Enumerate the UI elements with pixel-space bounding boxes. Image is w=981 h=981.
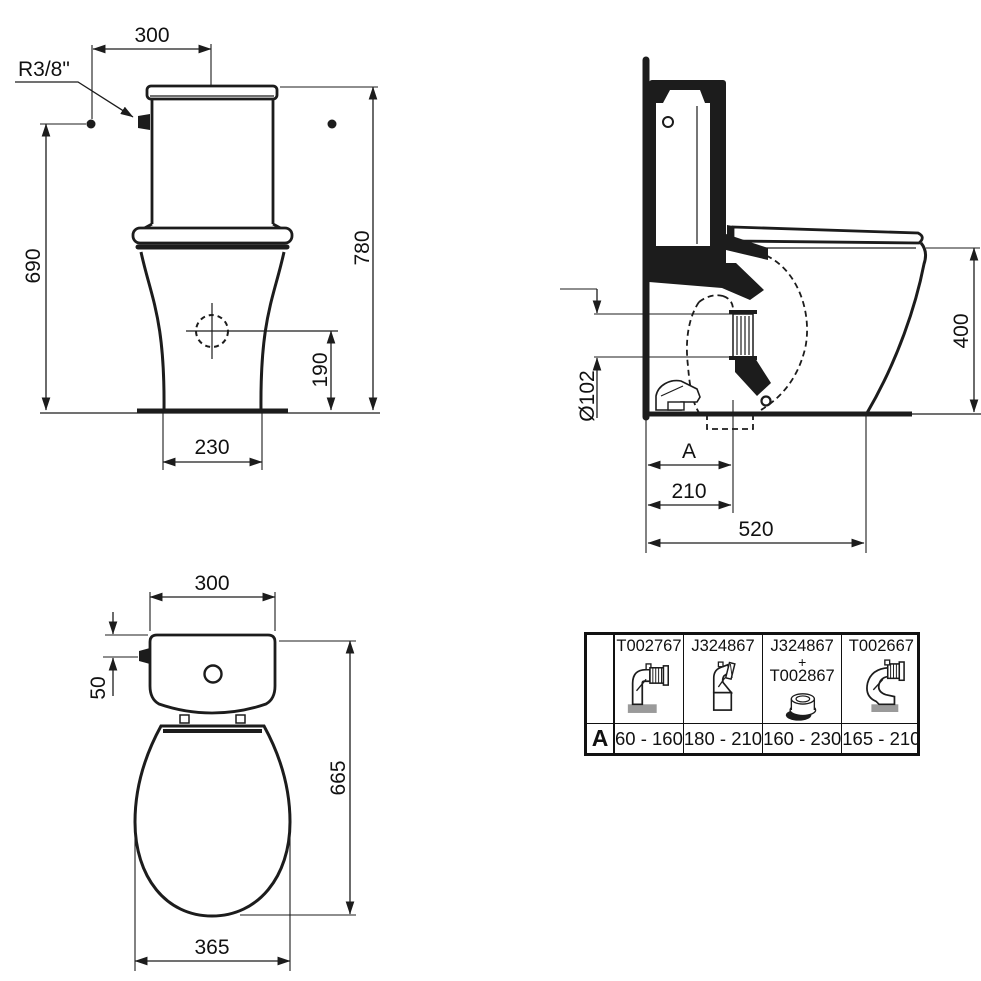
flush-button-side xyxy=(663,117,673,127)
bowl-front-profile xyxy=(867,243,926,413)
dim-total-height: 780 xyxy=(351,230,374,265)
outlet-spigot xyxy=(733,314,753,357)
part-number: T002667 xyxy=(849,638,914,656)
dim-tank-width: 300 xyxy=(194,572,229,595)
dim-adjustable: A xyxy=(682,440,696,463)
dim-outlet-center-height: 190 xyxy=(309,352,332,387)
seat-front xyxy=(133,228,292,243)
flush-button-top xyxy=(205,666,222,683)
eccentric-seal-icon xyxy=(776,687,828,723)
seat-bumper-dot xyxy=(762,397,771,406)
hinge-left xyxy=(180,715,189,723)
dim-seat-height: 400 xyxy=(950,313,973,348)
seat-lid-side xyxy=(733,227,922,243)
table-range-value: 60 - 160 xyxy=(613,723,683,753)
dim-inlet-thread: R3/8" xyxy=(18,58,70,81)
table-row-label: A xyxy=(587,723,613,753)
table-part-cell: J324867 xyxy=(683,635,762,723)
dim-outlet-wall-distance: 210 xyxy=(671,480,706,503)
table-part-cell: T002667 xyxy=(841,635,920,723)
table-part-cell: T002767 xyxy=(613,635,683,723)
part-number: J324867 xyxy=(691,638,754,656)
dim-base-width: 230 xyxy=(194,436,229,459)
table-range-value: 165 - 210 xyxy=(841,723,920,753)
table-range-value: 160 - 230 xyxy=(762,723,841,753)
offset-bend-pipe-icon xyxy=(699,657,747,717)
dim-inlet-height: 690 xyxy=(22,248,45,283)
toilet-dimension-drawing: 300 R3/8" 690 780 190 230 xyxy=(0,0,981,981)
hinge-right xyxy=(236,715,245,723)
dim-outlet-diameter: Ø102 xyxy=(576,370,599,421)
flush-mechanism xyxy=(649,263,764,300)
pedestal-left-edge xyxy=(141,252,164,411)
technical-drawing-page: 300 R3/8" 690 780 190 230 xyxy=(0,0,981,981)
bowl-top-outline xyxy=(135,726,290,916)
elbow-corrugated-pipe-icon xyxy=(624,657,674,717)
water-inlet-nub-front xyxy=(138,114,150,130)
table-part-cell: J324867 + T002867 xyxy=(762,635,841,723)
reference-dot-right xyxy=(328,120,337,129)
inlet-leader-line xyxy=(15,82,133,117)
front-view: 300 R3/8" 690 780 190 230 xyxy=(15,24,380,470)
outlet-compatibility-table: T002767 J324867 J324867 + T002867 xyxy=(584,632,920,756)
table-range-value: 180 - 210 xyxy=(683,723,762,753)
dim-inlet-offset: 50 xyxy=(87,676,110,699)
top-view-outline xyxy=(135,635,290,916)
table-corner-cell xyxy=(587,635,613,723)
part-number-2: T002867 xyxy=(770,668,835,686)
flexible-elbow-pipe-icon xyxy=(856,657,906,717)
dim-bowl-width: 365 xyxy=(194,936,229,959)
dim-depth: 520 xyxy=(738,518,773,541)
reference-dot-left xyxy=(87,120,96,129)
dim-total-length: 665 xyxy=(327,760,350,795)
dim-front-top-width: 300 xyxy=(134,24,169,47)
side-view-outline xyxy=(644,60,981,429)
water-inlet-nub-top xyxy=(139,648,150,664)
part-number: T002767 xyxy=(616,638,681,656)
top-view: 300 50 665 365 xyxy=(87,572,356,971)
side-view: 400 Ø102 A 210 520 xyxy=(560,60,981,553)
cistern-lid-front xyxy=(147,86,277,99)
